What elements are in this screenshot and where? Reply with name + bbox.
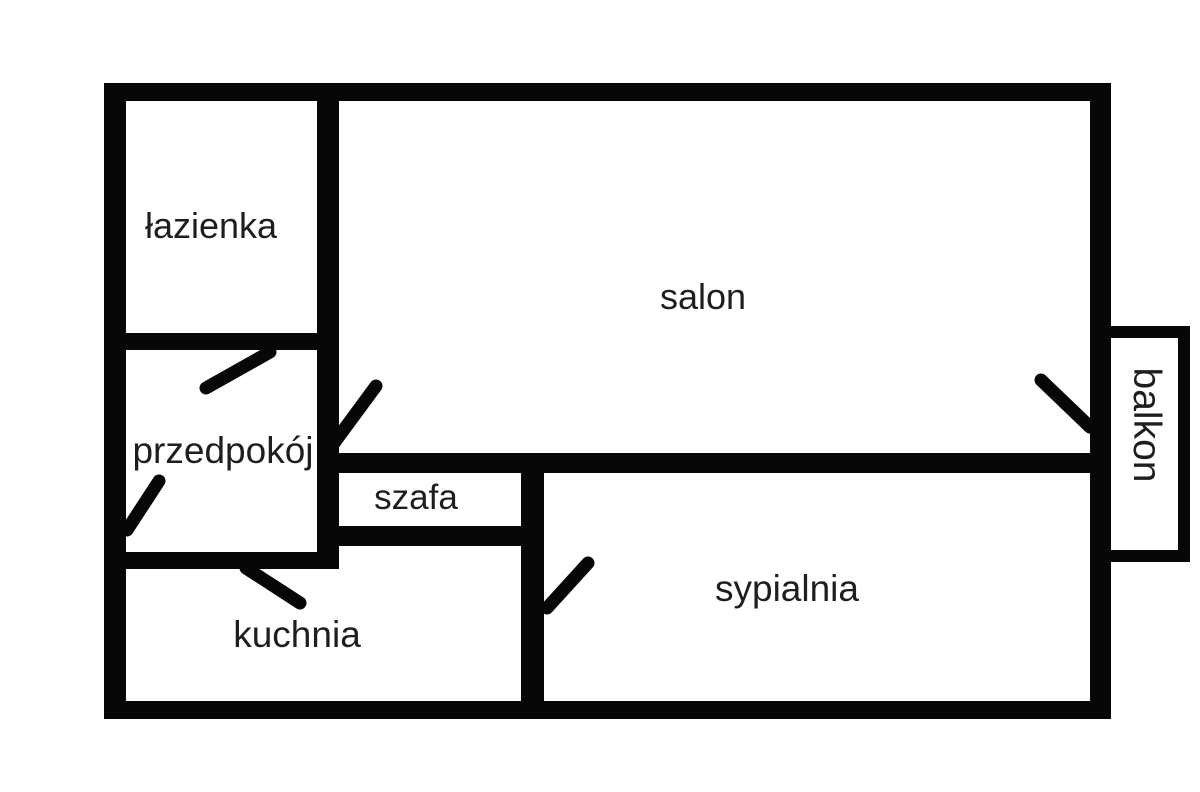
svg-text:salon: salon — [660, 276, 746, 317]
svg-text:przedpokój: przedpokój — [132, 430, 313, 471]
svg-text:balkon: balkon — [1125, 368, 1168, 483]
svg-text:sypialnia: sypialnia — [715, 568, 859, 609]
svg-text:kuchnia: kuchnia — [233, 614, 361, 655]
svg-text:łazienka: łazienka — [145, 205, 278, 246]
svg-text:szafa: szafa — [374, 478, 458, 517]
